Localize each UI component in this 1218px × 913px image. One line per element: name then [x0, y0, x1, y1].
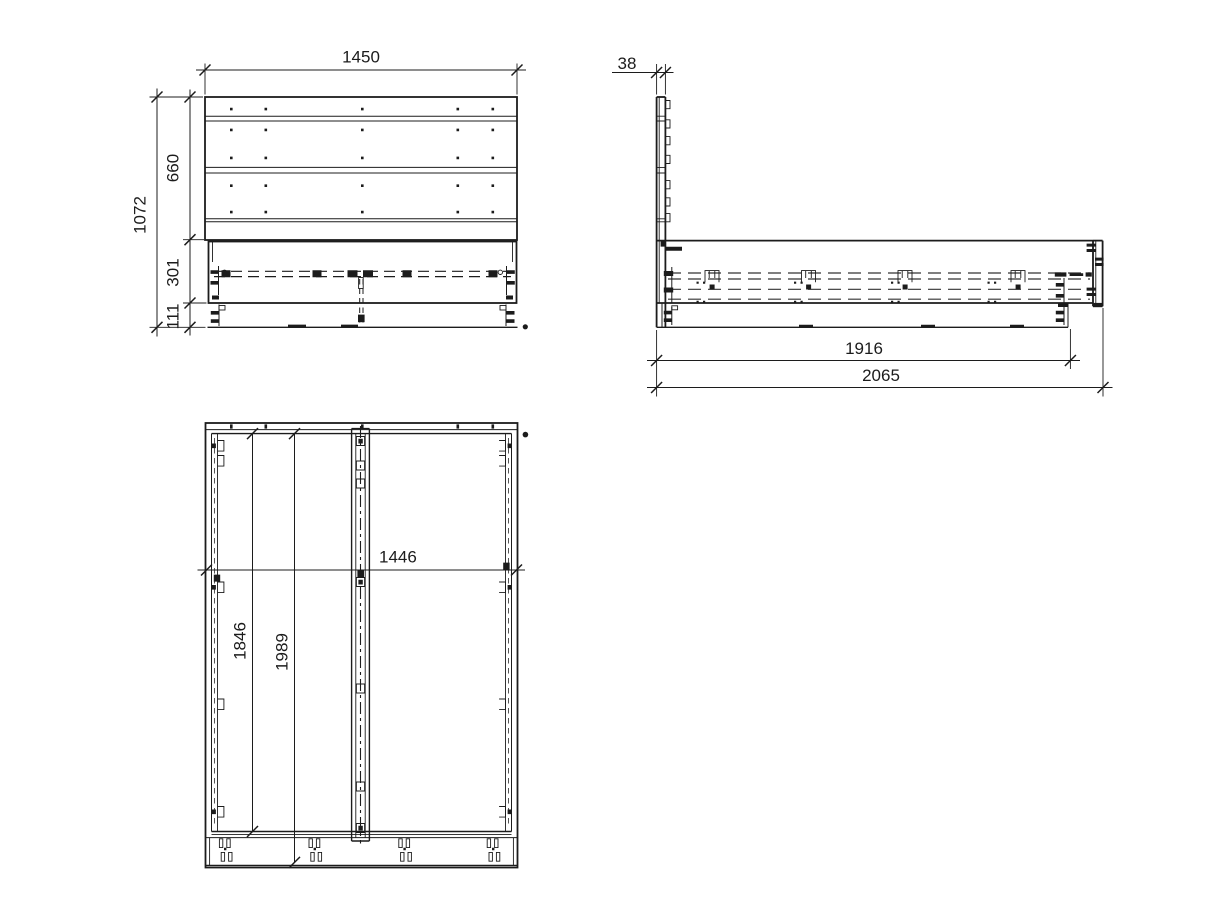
reference-dot-plan	[523, 432, 529, 438]
reference-dot-front	[523, 324, 528, 329]
side-legs-and-rail	[657, 303, 1068, 327]
dim-label-plan-inner-width: 1446	[379, 548, 417, 567]
screw-dots	[230, 108, 494, 214]
hidden-rail-dashes	[214, 271, 511, 276]
headboard-band-pins-row2	[221, 852, 500, 861]
plan-right-rail-clips	[499, 441, 505, 818]
dim-front-height-chain: 660 301 111	[164, 90, 207, 336]
dim-plan-overall-length: 1989	[273, 428, 301, 868]
dim-label-front-total-height: 1072	[131, 196, 150, 234]
dim-label-rail-height: 301	[164, 258, 183, 286]
dim-label-headboard-height: 660	[164, 154, 183, 182]
technical-drawing-page: 1450 1072 660 301 111	[0, 0, 1218, 913]
plan-left-rail	[212, 434, 224, 832]
dim-label-side-overall-length: 2065	[862, 366, 900, 385]
right-leg	[500, 305, 515, 327]
dim-plan-inner-length: 1846	[231, 428, 259, 837]
dim-label-plan-inner-length: 1846	[231, 622, 250, 660]
front-legs-and-floor	[208, 279, 528, 329]
headboard-band-pins-row1	[219, 839, 498, 848]
plan-headboard-band	[206, 832, 518, 866]
headboard-panel-joints	[205, 116, 517, 222]
headboard-connection-fittings	[661, 241, 682, 303]
front-headboard	[205, 97, 517, 240]
side-hidden-rails	[668, 273, 1090, 299]
dim-label-rail-length: 1916	[845, 339, 883, 358]
right-corner-bracket	[498, 266, 515, 300]
plan-view: 1446 1846 1989	[198, 423, 529, 868]
left-leg	[211, 305, 225, 327]
dim-label-front-width: 1450	[342, 48, 380, 67]
dim-front-width: 1450	[196, 48, 526, 95]
dim-label-leg-height: 111	[164, 304, 183, 330]
bed-technical-drawing: 1450 1072 660 301 111	[0, 0, 1218, 913]
headboard-joint-marks	[657, 116, 666, 222]
dim-label-headboard-thickness: 38	[618, 54, 637, 73]
side-headboard-strip	[657, 97, 670, 327]
dim-side-headboard-thickness: 38	[612, 54, 674, 95]
plan-left-rail-clips	[218, 441, 224, 818]
side-base-box	[657, 241, 1104, 303]
side-view: 38 1916 2065	[612, 54, 1113, 397]
plan-center-rail	[352, 426, 370, 844]
dim-side-rail-length: 1916	[647, 329, 1080, 369]
front-view: 1450 1072 660 301 111	[131, 48, 528, 337]
side-right-leg	[1056, 303, 1068, 325]
dim-label-plan-overall-length: 1989	[273, 633, 292, 671]
plan-right-rail	[499, 434, 512, 832]
